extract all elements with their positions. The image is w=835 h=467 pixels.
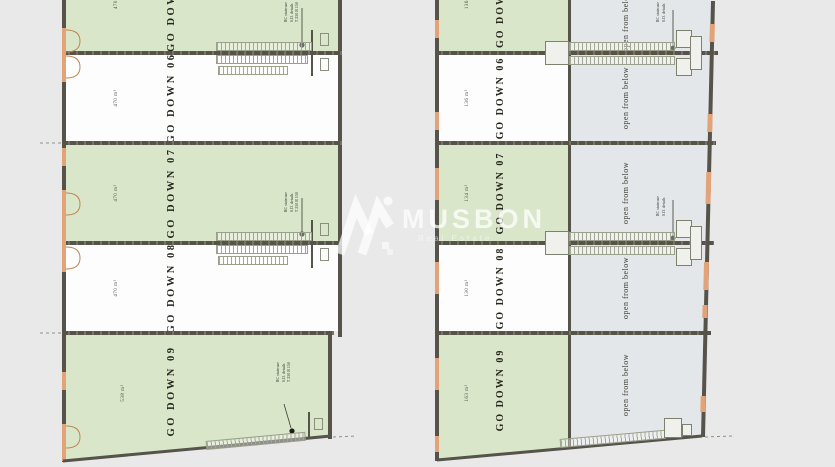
area-label: 470 m² (114, 279, 119, 296)
stair-note: RC staircaseS.D. detailsT 250 R 150 (284, 192, 300, 212)
divider-wall (435, 51, 718, 55)
stair-note: RC staircaseS.D. detailsT 250 R 150 (284, 2, 300, 22)
divider-wall (435, 331, 711, 335)
watermark-brand: MUSBON (402, 206, 546, 232)
toilet-fixture (320, 58, 329, 71)
room-left-godown-08: GO DOWN 08 470 m² (66, 245, 338, 331)
area-label: 136 m² (465, 0, 470, 9)
room-left-godown-06: GO DOWN 06 470 m² (66, 55, 338, 141)
stair-landing (682, 424, 692, 436)
room-right-godown-09: GO DOWN 09 163 m² (439, 335, 568, 461)
unit-label: GO DOWN 06 (495, 57, 506, 140)
open-from-below-label: open from below (621, 162, 630, 224)
staircase-run (569, 56, 675, 65)
wall-mezzanine-partition (568, 0, 571, 449)
unit-label: GO DOWN 08 (495, 247, 506, 330)
unit-label: GO DOWN 06 (166, 55, 177, 141)
toilet-fixture (320, 223, 329, 236)
door-opening (435, 262, 439, 294)
area-label: 538 m² (121, 385, 126, 402)
toilet-partition (311, 30, 313, 76)
stair-landing (690, 226, 702, 260)
unit-label: GO DOWN 07 (166, 148, 177, 239)
musbon-logo-icon (336, 192, 394, 256)
area-label: 470 m² (114, 184, 119, 201)
open-from-below-label: open from below (621, 257, 630, 319)
staircase-run (216, 42, 312, 51)
divider-wall (62, 331, 334, 335)
open-from-below-label: open from below (621, 354, 630, 416)
door-opening (62, 190, 66, 272)
toilet-fixture (320, 248, 329, 261)
unit-label: GO DOWN 05 (495, 0, 506, 48)
door-opening (62, 148, 66, 166)
staircase-run (218, 256, 288, 265)
stair-note: RC staircaseS.D. details (656, 196, 666, 216)
watermark: MUSBON Real Estate (336, 192, 546, 256)
room-left-godown-09: GO DOWN 09 538 m² (66, 335, 330, 462)
room-right-godown-08: GO DOWN 08 130 m² (439, 245, 568, 331)
divider-wall (62, 141, 342, 145)
stair-landing (545, 41, 569, 65)
door-opening (435, 20, 439, 38)
staircase-run (216, 232, 312, 241)
toilet-fixture (314, 418, 323, 430)
watermark-subtitle: Real Estate (418, 234, 546, 243)
staircase-run (569, 246, 675, 255)
stair-landing (545, 231, 569, 255)
unit-label: GO DOWN 09 (166, 345, 177, 436)
divider-wall (435, 141, 716, 145)
door-opening (435, 436, 439, 452)
unit-label: GO DOWN 08 (166, 245, 177, 331)
area-label: 470 m² (114, 89, 119, 106)
room-right-godown-06: GO DOWN 06 136 m² (439, 55, 568, 141)
watermark-text: MUSBON Real Estate (402, 206, 546, 243)
door-opening (62, 424, 66, 461)
door-opening (62, 372, 66, 390)
staircase-run (216, 245, 308, 254)
toilet-partition (311, 220, 313, 268)
toilet-partition (308, 412, 310, 438)
toilet-fixture (320, 33, 329, 46)
stair-landing (664, 418, 682, 438)
staircase-run (216, 55, 308, 64)
area-label: 130 m² (465, 279, 470, 296)
floor-plan-canvas: GO DOWN 05 470 m² GO DOWN 06 470 m² GO D… (0, 0, 835, 467)
door-opening (435, 112, 439, 130)
staircase-run (569, 232, 675, 241)
area-label: 163 m² (465, 384, 470, 401)
open-from-below-label: open from below (621, 67, 630, 129)
area-label: 470 m² (114, 0, 119, 9)
area-label: 136 m² (465, 89, 470, 106)
stair-note: RC staircaseS.D. detailsT 250 R 150 (276, 362, 292, 382)
stair-landing (690, 36, 702, 70)
door-opening (62, 28, 66, 82)
stair-note: RC staircaseS.D. details (656, 2, 666, 22)
unit-label: GO DOWN 05 (166, 0, 177, 51)
staircase-run (218, 66, 288, 75)
unit-label: GO DOWN 09 (495, 349, 506, 432)
staircase-run (569, 42, 675, 51)
wall-left-godown09-right (328, 335, 332, 439)
door-opening (435, 358, 439, 390)
